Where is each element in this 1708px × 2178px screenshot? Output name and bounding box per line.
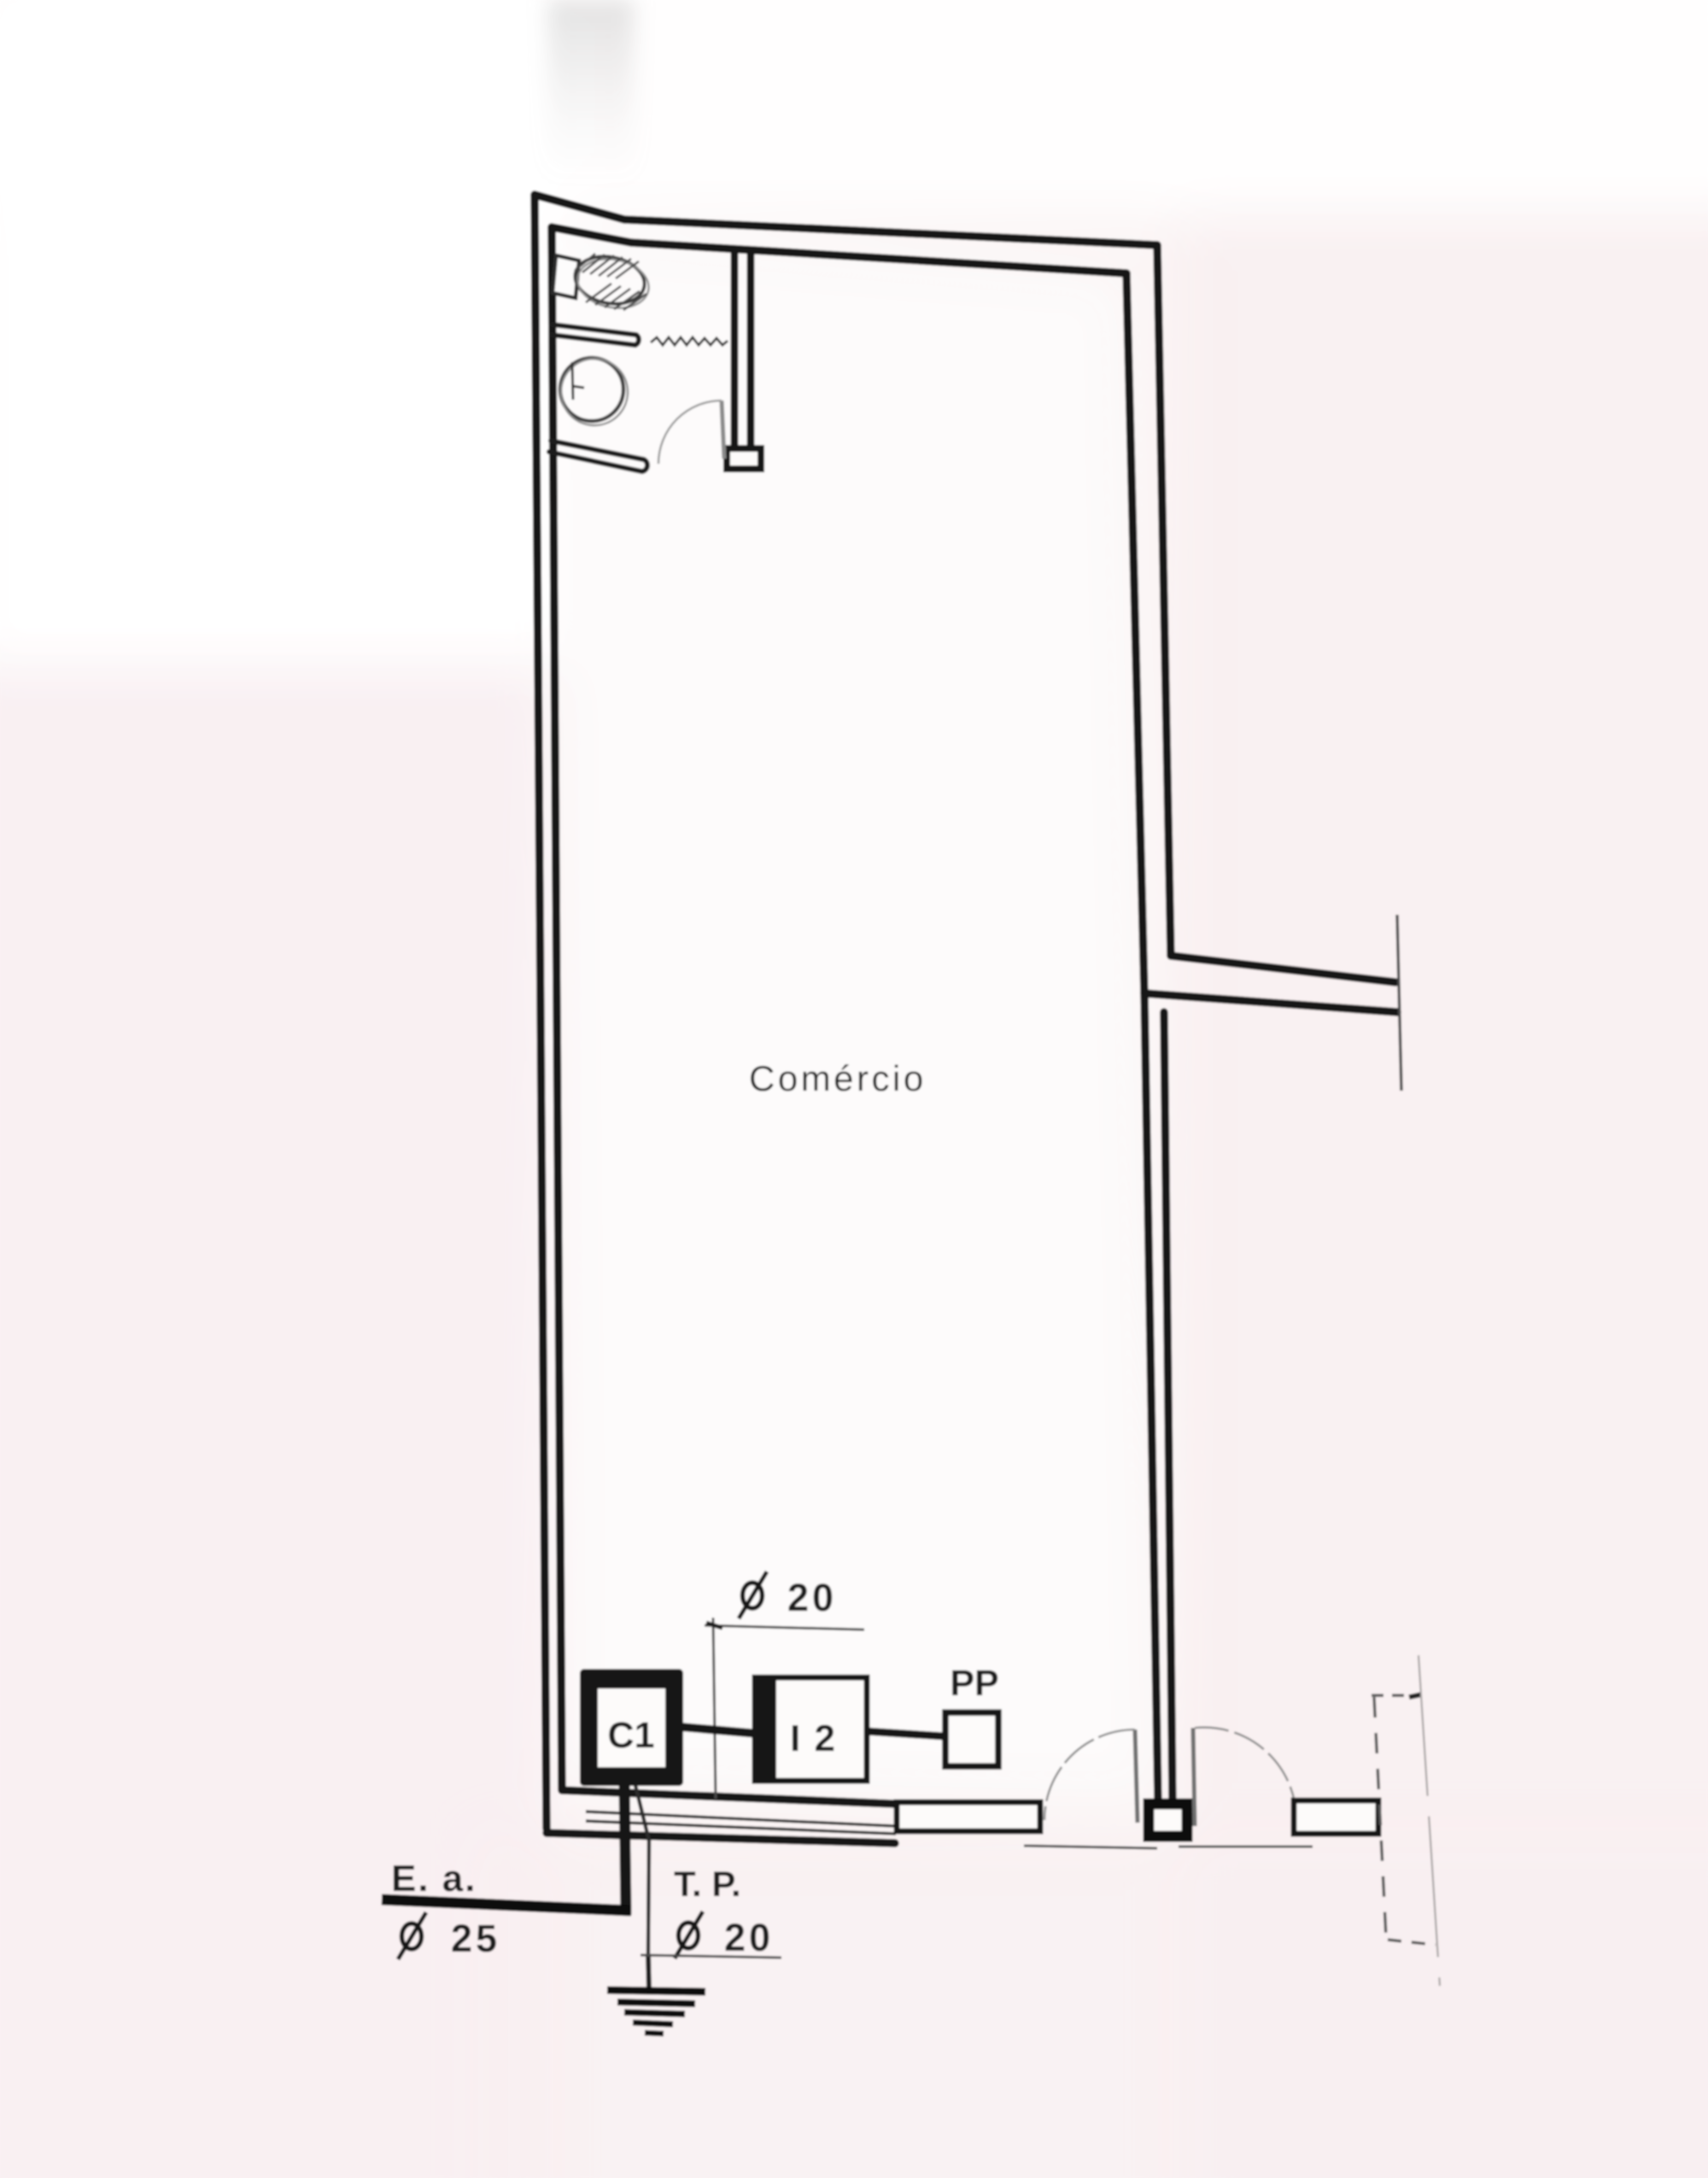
svg-text:PP: PP bbox=[950, 1663, 998, 1704]
svg-text:25: 25 bbox=[451, 1917, 500, 1960]
svg-text:C1: C1 bbox=[608, 1715, 655, 1756]
svg-text:Comércio: Comércio bbox=[749, 1058, 927, 1098]
svg-text:E. a.: E. a. bbox=[391, 1858, 477, 1900]
svg-text:20: 20 bbox=[724, 1916, 774, 1959]
svg-text:I 2: I 2 bbox=[790, 1718, 837, 1759]
svg-text:T. P.: T. P. bbox=[674, 1864, 741, 1904]
svg-text:20: 20 bbox=[787, 1576, 837, 1619]
